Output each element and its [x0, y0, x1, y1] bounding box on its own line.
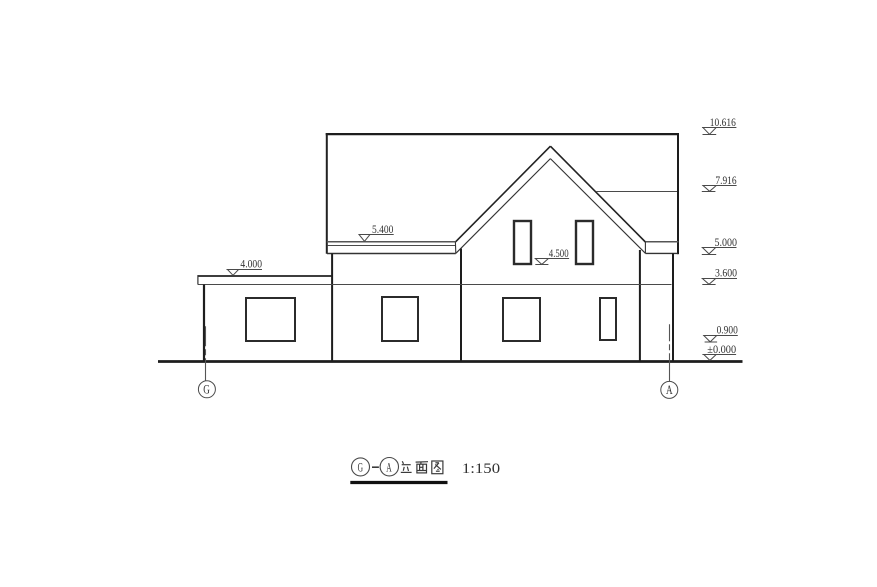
svg-text:0.900: 0.900	[717, 325, 738, 337]
svg-text:4.500: 4.500	[549, 248, 569, 260]
svg-text:A: A	[666, 383, 673, 397]
svg-text:4.000: 4.000	[240, 258, 262, 270]
svg-text:1:150: 1:150	[462, 460, 501, 477]
svg-text:G: G	[203, 382, 210, 396]
svg-text:A: A	[386, 461, 391, 475]
svg-text:10.616: 10.616	[710, 117, 736, 129]
svg-text:7.916: 7.916	[715, 175, 736, 187]
svg-text:5.400: 5.400	[372, 224, 394, 236]
svg-text:G: G	[358, 461, 363, 475]
svg-text:5.000: 5.000	[715, 237, 738, 249]
svg-text:3.600: 3.600	[715, 268, 737, 280]
svg-text:±0.000: ±0.000	[707, 344, 736, 356]
